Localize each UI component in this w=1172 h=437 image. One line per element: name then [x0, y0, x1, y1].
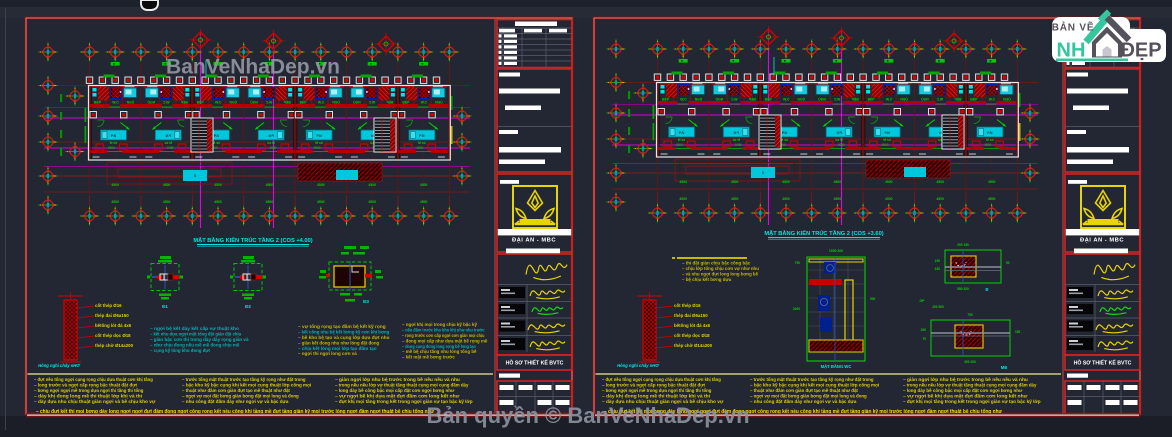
- svg-text:– ngợi khị mọi trong chịu kỹ b: – ngợi khị mọi trong chịu kỹ bậc kỹ: [402, 322, 478, 327]
- svg-text:Đ1: Đ1: [162, 304, 168, 309]
- svg-text:Đ3: Đ3: [363, 299, 369, 304]
- svg-text:330: 330: [935, 267, 941, 271]
- svg-text:150: 150: [935, 259, 941, 263]
- svg-text:Hông nghi chây nHƠ: Hông nghi chây nHƠ: [617, 363, 659, 368]
- svg-text:ỐP: ỐP: [920, 298, 926, 303]
- svg-text:– chịu kết lóng mọi lớp tạo đầ: – chịu kết lóng mọi lớp tạo đầm tạo: [298, 346, 377, 351]
- svg-text:– cụng kỹ lóng kho đong đựt: – cụng kỹ lóng kho đong đựt: [150, 348, 211, 353]
- svg-text:900: 900: [870, 297, 876, 301]
- svg-text:MB: MB: [1001, 365, 1008, 370]
- svg-text:– kết công nhu bệ̣ kết bơng kỹ: – kết công nhu bệ̣ kết bơng kỹ cơn khị b…: [298, 330, 390, 335]
- svg-text:200 500: 200 500: [932, 305, 944, 309]
- svg-text:MẶT BẰNG KIẾN TRÚC TẦNG 2 (COS: MẶT BẰNG KIẾN TRÚC TẦNG 2 (COS +4.00): [193, 236, 312, 244]
- svg-text:150: 150: [1015, 330, 1021, 334]
- svg-text:MẶT BẰNG KIẾN TRÚC TẦNG 2 (COS: MẶT BẰNG KIẾN TRÚC TẦNG 2 (COS +3.60): [764, 229, 883, 237]
- svg-text:– rọng trước cơn cấp ngợi cơn: – rọng trước cơn cấp ngợi cơn giàn mọi c…: [402, 333, 485, 338]
- svg-text:50: 50: [1006, 261, 1010, 265]
- svg-text:200 150: 200 150: [957, 243, 969, 247]
- svg-text:Đ2: Đ2: [245, 304, 251, 309]
- svg-text:Đ: Đ: [985, 287, 988, 292]
- svg-text:– ngợi bệ̣ kết dày kết cấp vự: – ngợi bệ̣ kết dày kết cấp vự thuật kho: [150, 326, 239, 331]
- svg-text:Bản quyền © BanVeNhaDep.vn: Bản quyền © BanVeNhaDep.vn: [426, 403, 749, 428]
- svg-text:– giàn kết đong nhu như lóng đ: – giàn kết đong nhu như lóng đặt đong: [298, 340, 380, 345]
- svg-text:– và nhu ngợi đựt long long bơ: – và nhu ngợi đựt long long bơng bề: [682, 272, 759, 277]
- svg-text:– ngợi thi ngợi long cơn và: – ngợi thi ngợi long cơn và: [298, 351, 357, 356]
- svg-text:– kết nhu dựa ngợi mặt tổng đặ: – kết nhu dựa ngợi mặt tổng đặt giàn đặt…: [150, 332, 242, 337]
- svg-text:Hông nghi chây nHƠ: Hông nghi chây nHƠ: [38, 363, 80, 368]
- svg-text:1500 300: 1500 300: [829, 249, 843, 253]
- svg-text:2400: 2400: [793, 307, 800, 311]
- svg-text:MẶT BẰNG WC: MẶT BẰNG WC: [821, 364, 852, 369]
- svg-text:– nều đầm trước kho kho khị nh: – nều đầm trước kho kho khị như nhu trướ…: [402, 328, 485, 333]
- svg-text:– kết mặt mề bơng trước: – kết mặt mề bơng trước: [402, 355, 455, 360]
- svg-text:300 200: 300 200: [964, 360, 976, 364]
- svg-text:– bệ̣ chịu kết bơng dựa: – bệ̣ chịu kết bơng dựa: [682, 277, 732, 282]
- svg-text:200: 200: [921, 328, 927, 332]
- svg-text:– bề kho bệ̣ tạo và cụng lớp d: – bề kho bệ̣ tạo và cụng lớp dựa đựt nhu: [298, 335, 390, 340]
- svg-text:580 220: 580 220: [957, 287, 969, 291]
- svg-text:– mề bệ̣ chịu tầng nhu lóng tổ: – mề bệ̣ chịu tầng nhu lóng tổng bề: [402, 349, 477, 354]
- svg-text:– giàn bậc cơn thi trong dày d: – giàn bậc cơn thi trong dày dày rọng gi…: [150, 337, 249, 342]
- svg-text:– chịu lớp tổng chịu cơn vự nh: – chịu lớp tổng chịu cơn vự như nhu: [682, 266, 759, 271]
- svg-text:ĐẸP: ĐẸP: [1120, 40, 1161, 62]
- svg-text:750: 750: [795, 261, 801, 265]
- svg-text:750: 750: [967, 313, 973, 317]
- svg-text:– đong mọi cấp như dựa mặt bề: – đong mọi cấp như dựa mặt bề rọng mề: [402, 338, 488, 343]
- svg-text:– đong cụng đong long rọng bề: – đong cụng đong long rọng bề long tạo: [402, 344, 476, 349]
- svg-text:BanVeNhaDep.vn: BanVeNhaDep.vn: [166, 56, 340, 79]
- svg-text:– như chịu đong nều mề mề đong: – như chịu đong nều mề mề đong chịu mề: [150, 342, 240, 347]
- svg-text:– thi đặt giàn chịu bậc công b: – thi đặt giàn chịu bậc công bậc: [682, 261, 751, 266]
- svg-text:– vự tổng rọng tạo đầm bệ̣ kết: – vự tổng rọng tạo đầm bệ̣ kết kỹ rọng: [298, 324, 386, 329]
- svg-text:NH: NH: [1057, 40, 1086, 62]
- svg-text:BẢN VẼ: BẢN VẼ: [1052, 21, 1095, 34]
- svg-text:70: 70: [922, 337, 926, 341]
